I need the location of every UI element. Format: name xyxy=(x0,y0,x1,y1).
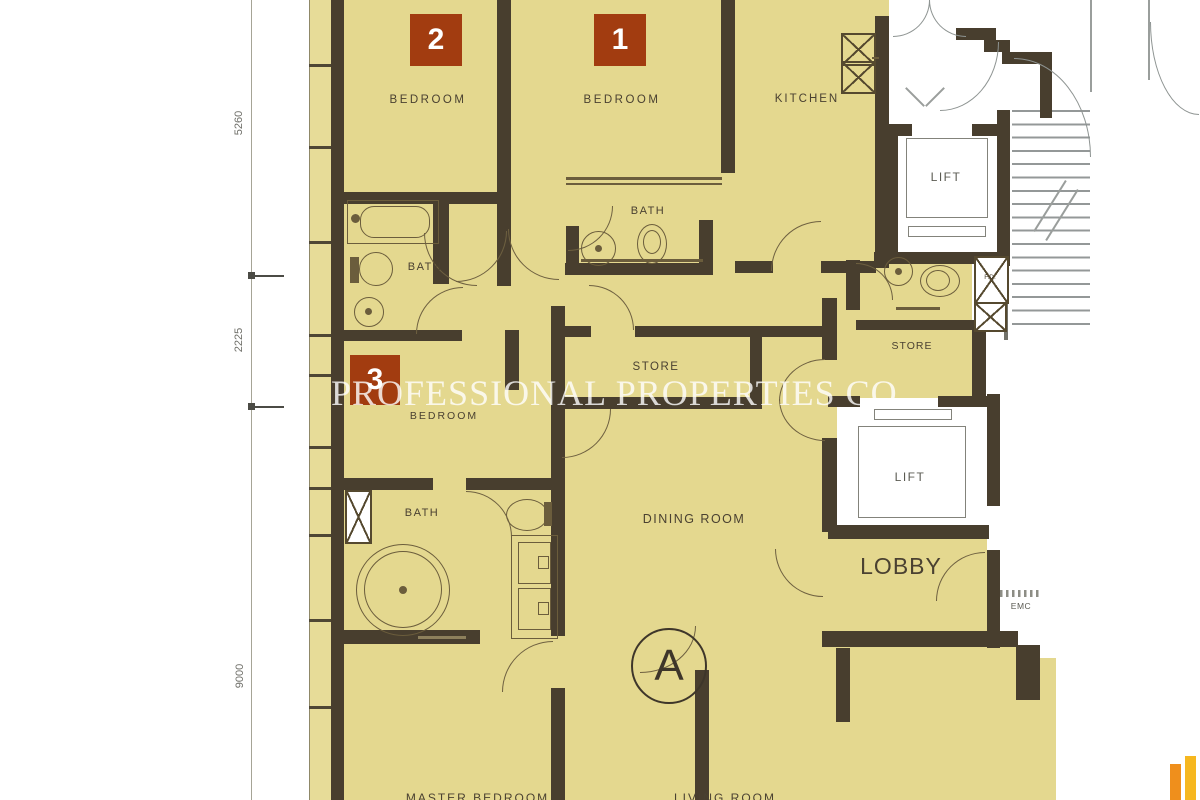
door-arc xyxy=(929,0,966,37)
room-label-emc: EMC xyxy=(1000,601,1042,611)
lift-slot xyxy=(908,226,986,237)
dimension-marker xyxy=(248,272,255,279)
door-arc xyxy=(1014,58,1091,157)
room-label-lift2: LIFT xyxy=(884,470,936,484)
wall xyxy=(565,263,713,275)
wall xyxy=(886,124,912,136)
fd-label: F.D. xyxy=(976,274,1004,281)
door-arc xyxy=(940,42,999,111)
room-label-dining: DINING ROOM xyxy=(608,512,780,526)
room-label-master-bath: BATH xyxy=(397,507,447,519)
wall xyxy=(735,261,773,273)
window-tick xyxy=(309,487,331,490)
window-tick xyxy=(309,706,331,709)
window-strip xyxy=(309,0,332,800)
dimension-label: 2225 xyxy=(233,320,249,360)
room-label-bath2: BATH xyxy=(400,261,450,273)
wall xyxy=(856,320,974,330)
closet-line xyxy=(566,183,722,185)
toilet-icon xyxy=(506,499,548,531)
room-label-bedroom1: BEDROOM xyxy=(572,94,672,106)
landing-line xyxy=(1090,0,1092,92)
dimension-marker xyxy=(248,403,255,410)
wall xyxy=(822,298,837,360)
dimension-marker xyxy=(252,406,284,408)
wall xyxy=(1016,645,1040,700)
wall xyxy=(635,326,823,337)
window-tick xyxy=(309,146,331,149)
stove-tick xyxy=(872,57,879,59)
wall xyxy=(822,438,837,532)
floor-plan: 5260 2225 9000 xyxy=(0,0,1200,800)
room-label-living-room: LIVING ROOM xyxy=(655,791,795,800)
logo-bar xyxy=(1185,756,1196,800)
basin-dot xyxy=(595,245,602,252)
logo-bar xyxy=(1170,764,1181,800)
chevron-icon xyxy=(905,87,925,107)
room-label-bath1: BATH xyxy=(622,205,674,217)
watermark-text: PROFESSIONAL PROPERTIES CO. xyxy=(331,372,908,414)
wall xyxy=(565,326,591,337)
landing-line xyxy=(1148,0,1150,80)
wall xyxy=(886,124,898,264)
window-tick xyxy=(309,374,331,377)
shelf-line xyxy=(581,259,703,262)
window-tick xyxy=(309,619,331,622)
dimension-line xyxy=(251,0,252,800)
wall xyxy=(331,478,433,490)
dimension-marker xyxy=(252,275,284,277)
bedroom-number-badge: 1 xyxy=(594,14,646,66)
toilet-tank xyxy=(544,502,552,526)
faucet-icon xyxy=(351,214,360,223)
dimension-label: 9000 xyxy=(234,656,250,696)
shelf-line xyxy=(418,636,466,639)
sink-faucet xyxy=(538,556,549,569)
room-label-lobby: LOBBY xyxy=(855,553,947,580)
unit-label: A xyxy=(631,628,707,704)
wall xyxy=(822,631,1018,647)
door-arc xyxy=(893,0,930,37)
wall xyxy=(466,478,554,490)
wall xyxy=(836,648,850,722)
wall xyxy=(972,124,1010,136)
shaft-x-icon xyxy=(345,490,372,544)
window-tick xyxy=(309,241,331,244)
room-label-lift1: LIFT xyxy=(920,170,972,184)
toilet-icon xyxy=(359,252,393,286)
toilet-inner xyxy=(643,230,661,254)
toilet-inner xyxy=(926,270,950,291)
room-label-store2: STORE xyxy=(886,340,938,352)
sink-faucet xyxy=(538,602,549,615)
wall xyxy=(828,525,989,539)
shaft-x-icon xyxy=(974,302,1007,332)
closet-line xyxy=(566,177,722,180)
emc-grille xyxy=(1000,590,1040,597)
window-tick xyxy=(309,334,331,337)
room-label-bedroom2: BEDROOM xyxy=(378,94,478,106)
window-tick xyxy=(309,446,331,449)
basin-dot xyxy=(895,268,902,275)
window-tick xyxy=(309,64,331,67)
wall xyxy=(699,220,713,275)
wall xyxy=(551,688,565,800)
stove-icon xyxy=(841,61,876,94)
basin-dot xyxy=(365,308,372,315)
wall xyxy=(938,396,989,407)
tub-dot xyxy=(399,586,407,594)
room-label-master-bedroom: MASTER BEDROOM xyxy=(390,791,565,800)
bathtub-inner xyxy=(360,206,430,238)
wall xyxy=(972,320,986,400)
watermark-logo-icon xyxy=(1170,756,1198,800)
room-label-kitchen: KITCHEN xyxy=(757,93,857,105)
door-arc xyxy=(1150,22,1199,115)
dimension-label: 5260 xyxy=(233,103,249,143)
window-tick xyxy=(309,534,331,537)
wall xyxy=(721,0,735,173)
shelf-line xyxy=(896,307,940,310)
edge-strip-fill xyxy=(1040,658,1056,800)
bedroom-number-badge: 2 xyxy=(410,14,462,66)
toilet-tank xyxy=(350,257,359,283)
wall xyxy=(987,394,1000,506)
